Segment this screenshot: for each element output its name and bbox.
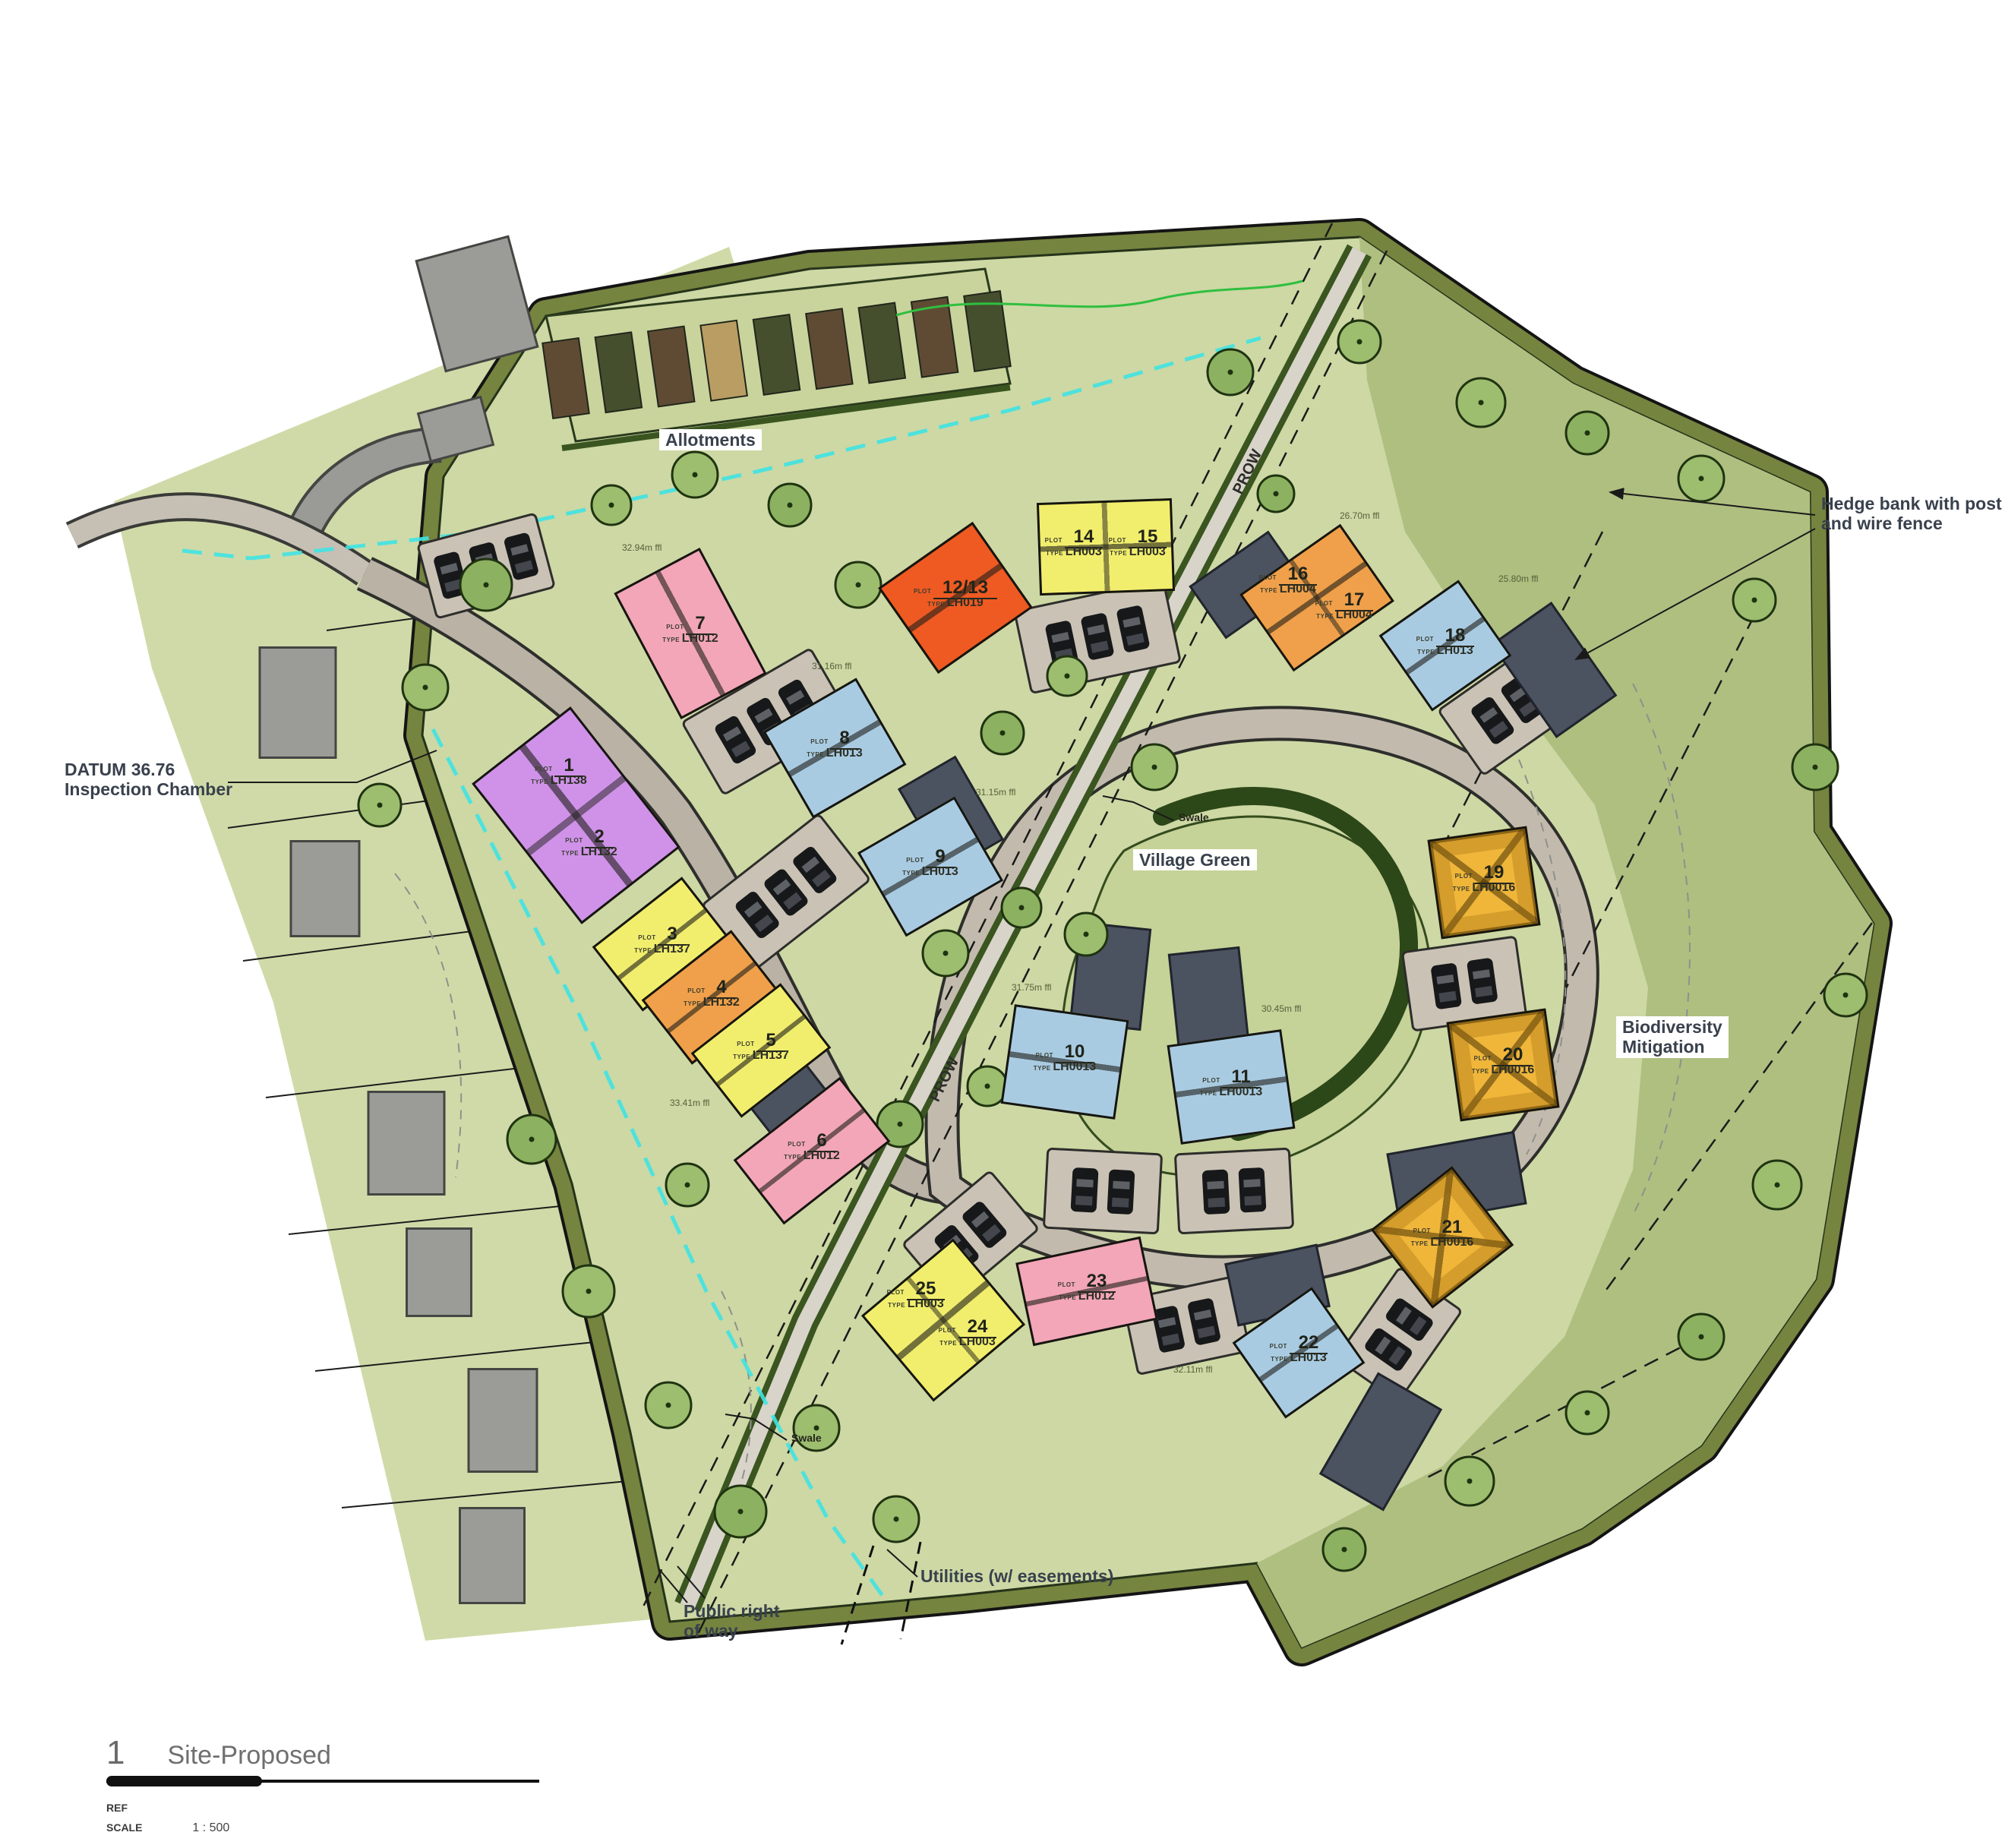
plot-building-7 (614, 548, 766, 719)
plot-building-22 (1233, 1287, 1366, 1418)
public-right-of-way-label: Public right of way (684, 1601, 780, 1641)
biodiversity-label: Biodiversity Mitigation (1616, 1016, 1729, 1058)
ffl-measurement-7: 32.94m ffl (622, 542, 661, 553)
plot-building-24-25 (861, 1239, 1025, 1402)
swale-label-2: Swale (791, 1432, 822, 1444)
ref-label: REF (106, 1802, 128, 1814)
ffl-measurement-11: 30.45m ffl (1261, 1003, 1301, 1014)
plot-building-19 (1427, 826, 1540, 939)
plot-building-11 (1167, 1029, 1296, 1145)
ffl-measurement-10: 31.75m ffl (1012, 982, 1051, 993)
site-plan-canvas: PLOT 1TYPE LH138PLOT 2TYPE LH132PLOT 3TY… (0, 0, 2005, 1848)
hedge-bank-label: Hedge bank with post and wire fence (1821, 494, 2002, 534)
title-block: 1Site-Proposed REF SCALE 1 : 500 (106, 1734, 331, 1838)
plot-building-14-15 (1037, 498, 1175, 595)
ffl-measurement-9: 31.15m ffl (976, 787, 1015, 798)
title-meta: REF SCALE 1 : 500 (106, 1799, 331, 1838)
ffl-measurement-18: 25.80m ffl (1498, 573, 1538, 584)
scale-label: SCALE (106, 1821, 142, 1834)
village-green-label: Village Green (1133, 849, 1257, 870)
figure-title: Site-Proposed (167, 1741, 330, 1770)
plot-building-20 (1446, 1008, 1559, 1121)
ffl-measurement-5: 33.41m ffl (670, 1098, 709, 1108)
ffl-measurement-8: 31.16m ffl (812, 661, 851, 671)
plot-building-18 (1379, 580, 1512, 711)
allotments-label: Allotments (659, 429, 762, 450)
plot-building-21 (1371, 1166, 1514, 1309)
plot-building-1-2 (472, 706, 680, 924)
plot-building-8 (763, 678, 907, 818)
plot-building-12-13 (878, 522, 1033, 674)
title-underline (106, 1780, 539, 1783)
ffl-measurement-22: 32.11m ffl (1173, 1364, 1213, 1375)
ffl-measurement-16: 26.70m ffl (1340, 510, 1379, 521)
scale-value: 1 : 500 (192, 1821, 229, 1834)
figure-number: 1 (106, 1734, 125, 1771)
utilities-label: Utilities (w/ easements) (920, 1566, 1113, 1586)
plot-building-9 (857, 797, 1003, 937)
plot-building-23 (1015, 1237, 1158, 1346)
swale-label-1: Swale (1179, 811, 1209, 823)
plot-building-10 (1001, 1004, 1129, 1120)
plot-building-16-17 (1239, 524, 1394, 671)
datum-label: DATUM 36.76 Inspection Chamber (65, 760, 232, 800)
